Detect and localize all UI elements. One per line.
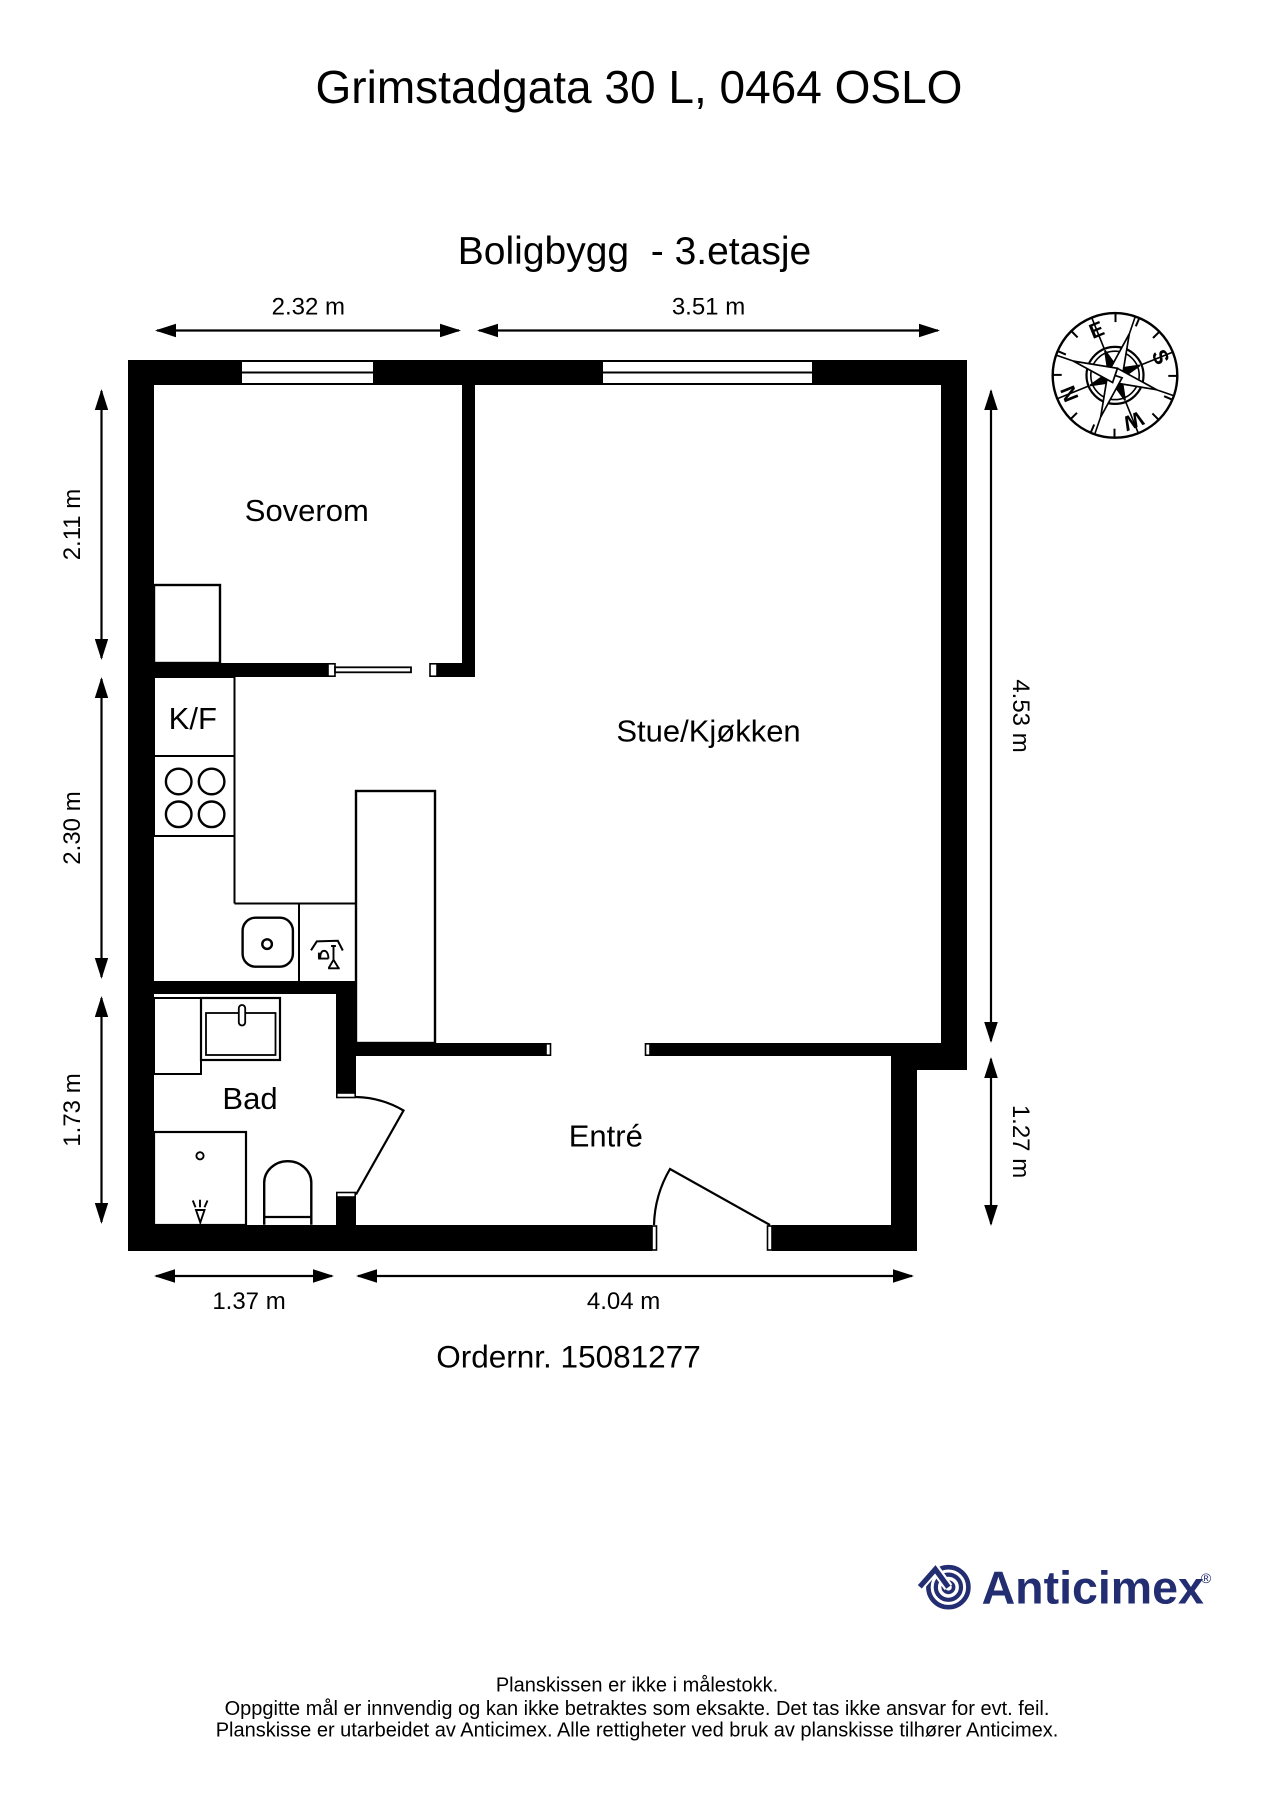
svg-text:1.73 m: 1.73 m [59, 1073, 86, 1146]
svg-text:Anticimex: Anticimex [982, 1562, 1204, 1614]
svg-text:Bad: Bad [222, 1081, 277, 1116]
svg-text:Boligbygg - 3.etasje: Boligbygg - 3.etasje [458, 230, 811, 273]
svg-text:Planskisse er utarbeidet av An: Planskisse er utarbeidet av Anticimex. A… [216, 1720, 1059, 1742]
svg-text:Entré: Entré [569, 1119, 643, 1154]
svg-text:4.53 m: 4.53 m [1007, 679, 1034, 752]
svg-text:2.30 m: 2.30 m [59, 791, 86, 864]
svg-text:1.27 m: 1.27 m [1007, 1105, 1034, 1178]
svg-text:1.37 m: 1.37 m [212, 1288, 285, 1315]
svg-text:4.04 m: 4.04 m [587, 1288, 660, 1315]
svg-text:Ordernr. 15081277: Ordernr. 15081277 [436, 1339, 700, 1375]
svg-text:2.32 m: 2.32 m [272, 294, 345, 321]
svg-text:Grimstadgata 30 L, 0464 OSLO: Grimstadgata 30 L, 0464 OSLO [316, 61, 963, 113]
svg-text:2.11 m: 2.11 m [59, 489, 86, 561]
svg-text:®: ® [1201, 1570, 1212, 1586]
svg-text:Oppgitte mål er innvendig og k: Oppgitte mål er innvendig og kan ikke be… [225, 1698, 1050, 1720]
svg-text:K/F: K/F [169, 701, 217, 736]
svg-text:Stue/Kjøkken: Stue/Kjøkken [616, 714, 800, 749]
svg-text:Planskissen er ikke i målestok: Planskissen er ikke i målestokk. [496, 1675, 778, 1697]
svg-text:Soverom: Soverom [245, 493, 369, 528]
svg-text:3.51 m: 3.51 m [672, 294, 745, 321]
